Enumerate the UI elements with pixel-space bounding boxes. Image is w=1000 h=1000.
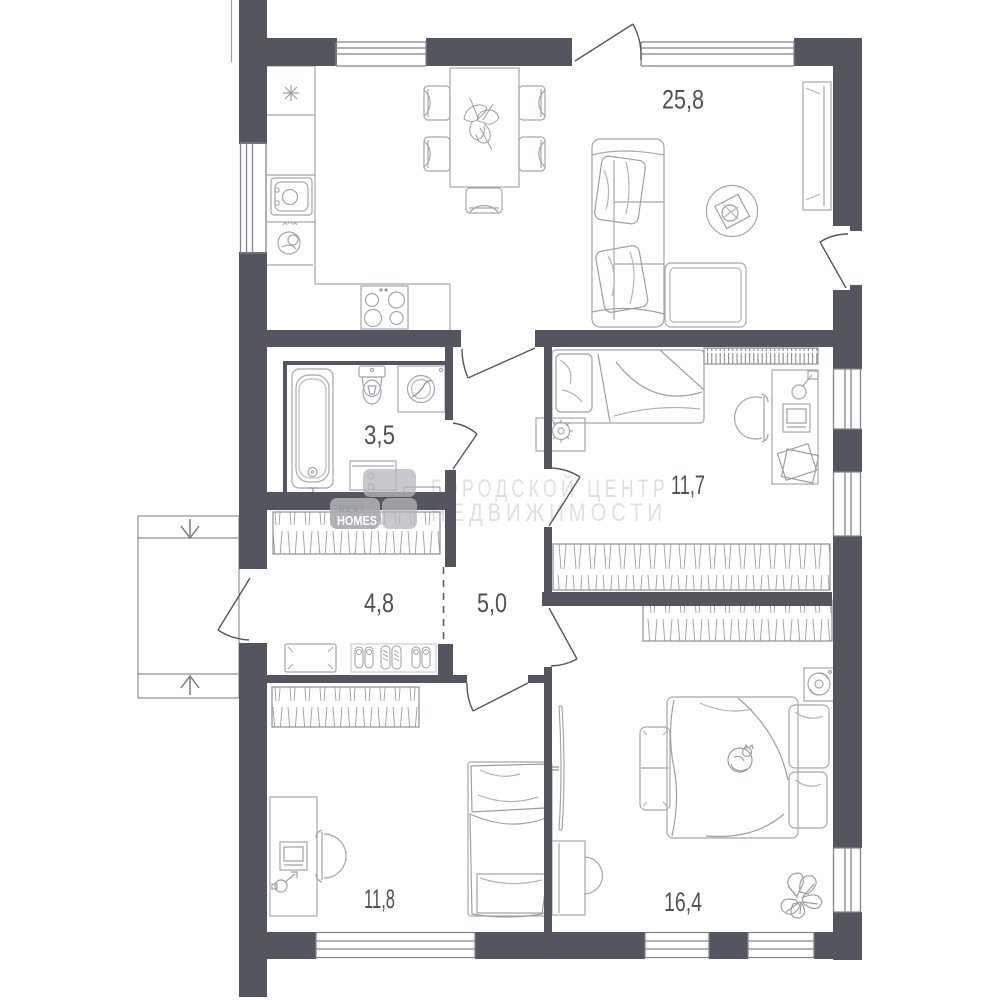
svg-text:11,7: 11,7 (671, 470, 705, 500)
svg-text:5,0: 5,0 (477, 588, 507, 618)
svg-text:16,4: 16,4 (664, 887, 702, 917)
svg-text:11,8: 11,8 (364, 884, 395, 914)
svg-text:НЕДВИЖИМОСТИ: НЕДВИЖИМОСТИ (431, 499, 667, 527)
svg-text:3,5: 3,5 (364, 420, 395, 450)
svg-text:25,8: 25,8 (662, 85, 704, 115)
svg-text:4,8: 4,8 (364, 588, 394, 618)
svg-text:HOMES: HOMES (337, 513, 377, 528)
